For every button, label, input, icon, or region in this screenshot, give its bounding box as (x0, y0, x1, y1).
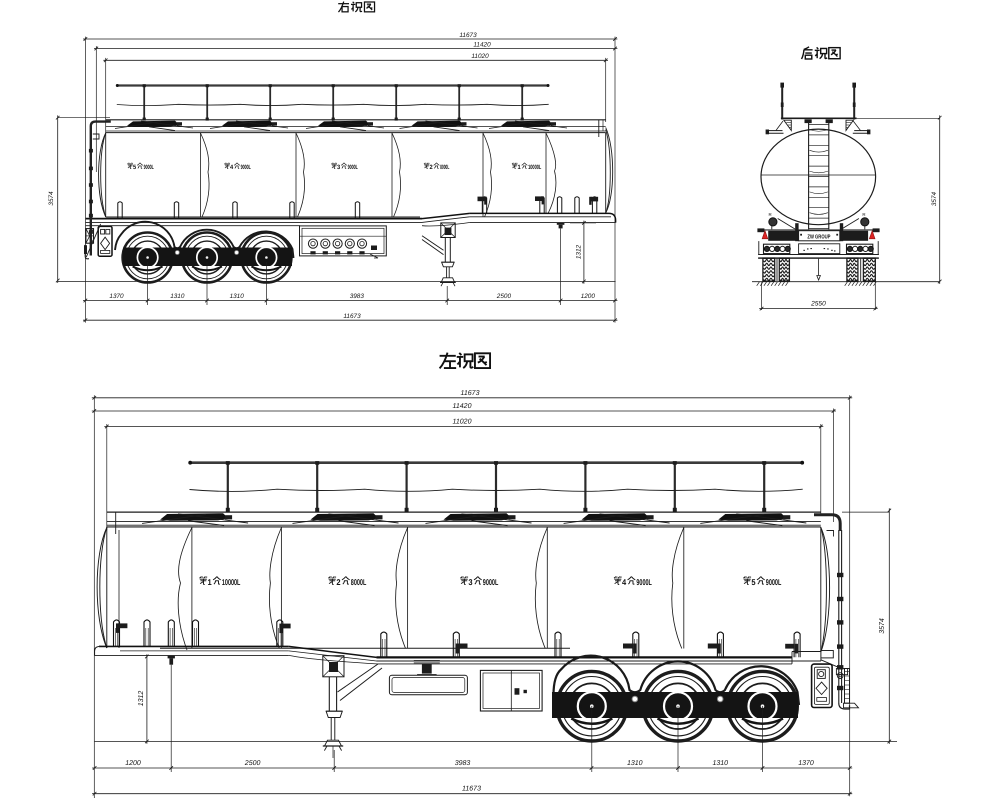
svg-text:9000L: 9000L (766, 577, 782, 587)
svg-text:2500: 2500 (496, 293, 512, 300)
svg-text:11673: 11673 (461, 390, 480, 397)
svg-text:2: 2 (336, 577, 340, 587)
svg-text:10000L: 10000L (528, 164, 541, 171)
svg-text:R: R (862, 212, 865, 217)
svg-text:10000L: 10000L (222, 577, 241, 587)
svg-text:4: 4 (230, 164, 234, 171)
svg-text:9000L: 9000L (241, 164, 251, 171)
svg-text:3983: 3983 (350, 293, 365, 300)
svg-text:3: 3 (468, 577, 472, 587)
svg-text:1310: 1310 (170, 293, 185, 300)
svg-text:5: 5 (133, 164, 137, 171)
svg-text:11673: 11673 (462, 786, 481, 793)
svg-text:R: R (769, 212, 772, 217)
svg-text:ZW GROUP: ZW GROUP (807, 234, 830, 241)
svg-text:11420: 11420 (473, 41, 491, 48)
svg-text:9000L: 9000L (144, 164, 154, 171)
svg-text:9000L: 9000L (636, 577, 652, 587)
svg-text:1: 1 (518, 164, 522, 171)
svg-text:4: 4 (622, 577, 626, 587)
svg-text:1200: 1200 (581, 293, 596, 300)
svg-text:3574: 3574 (48, 191, 55, 206)
svg-text:3: 3 (337, 164, 341, 171)
svg-text:8000L: 8000L (351, 577, 367, 587)
svg-text:1310: 1310 (627, 760, 643, 767)
svg-text:11673: 11673 (343, 313, 361, 320)
svg-text:1370: 1370 (798, 760, 814, 767)
svg-text:2550: 2550 (810, 301, 826, 308)
svg-text:1312: 1312 (575, 244, 582, 259)
svg-text:11673: 11673 (459, 32, 477, 39)
svg-text:3574: 3574 (879, 618, 886, 634)
svg-text:8000L: 8000L (440, 164, 449, 171)
svg-text:3574: 3574 (931, 191, 938, 206)
svg-text:1312: 1312 (138, 691, 145, 707)
svg-text:1370: 1370 (109, 293, 124, 300)
svg-text:9000L: 9000L (483, 577, 499, 587)
svg-text:5: 5 (751, 577, 755, 587)
svg-text:11420: 11420 (453, 403, 472, 410)
svg-text:2: 2 (430, 164, 434, 171)
svg-text:3983: 3983 (455, 760, 471, 767)
svg-text:2500: 2500 (244, 760, 261, 767)
svg-text:1310: 1310 (230, 293, 245, 300)
svg-text:9000L: 9000L (348, 164, 358, 171)
svg-text:11020: 11020 (453, 419, 472, 426)
svg-text:1: 1 (208, 577, 212, 587)
svg-text:1310: 1310 (713, 760, 729, 767)
svg-text:11020: 11020 (471, 53, 489, 60)
svg-text:1200: 1200 (125, 760, 141, 767)
